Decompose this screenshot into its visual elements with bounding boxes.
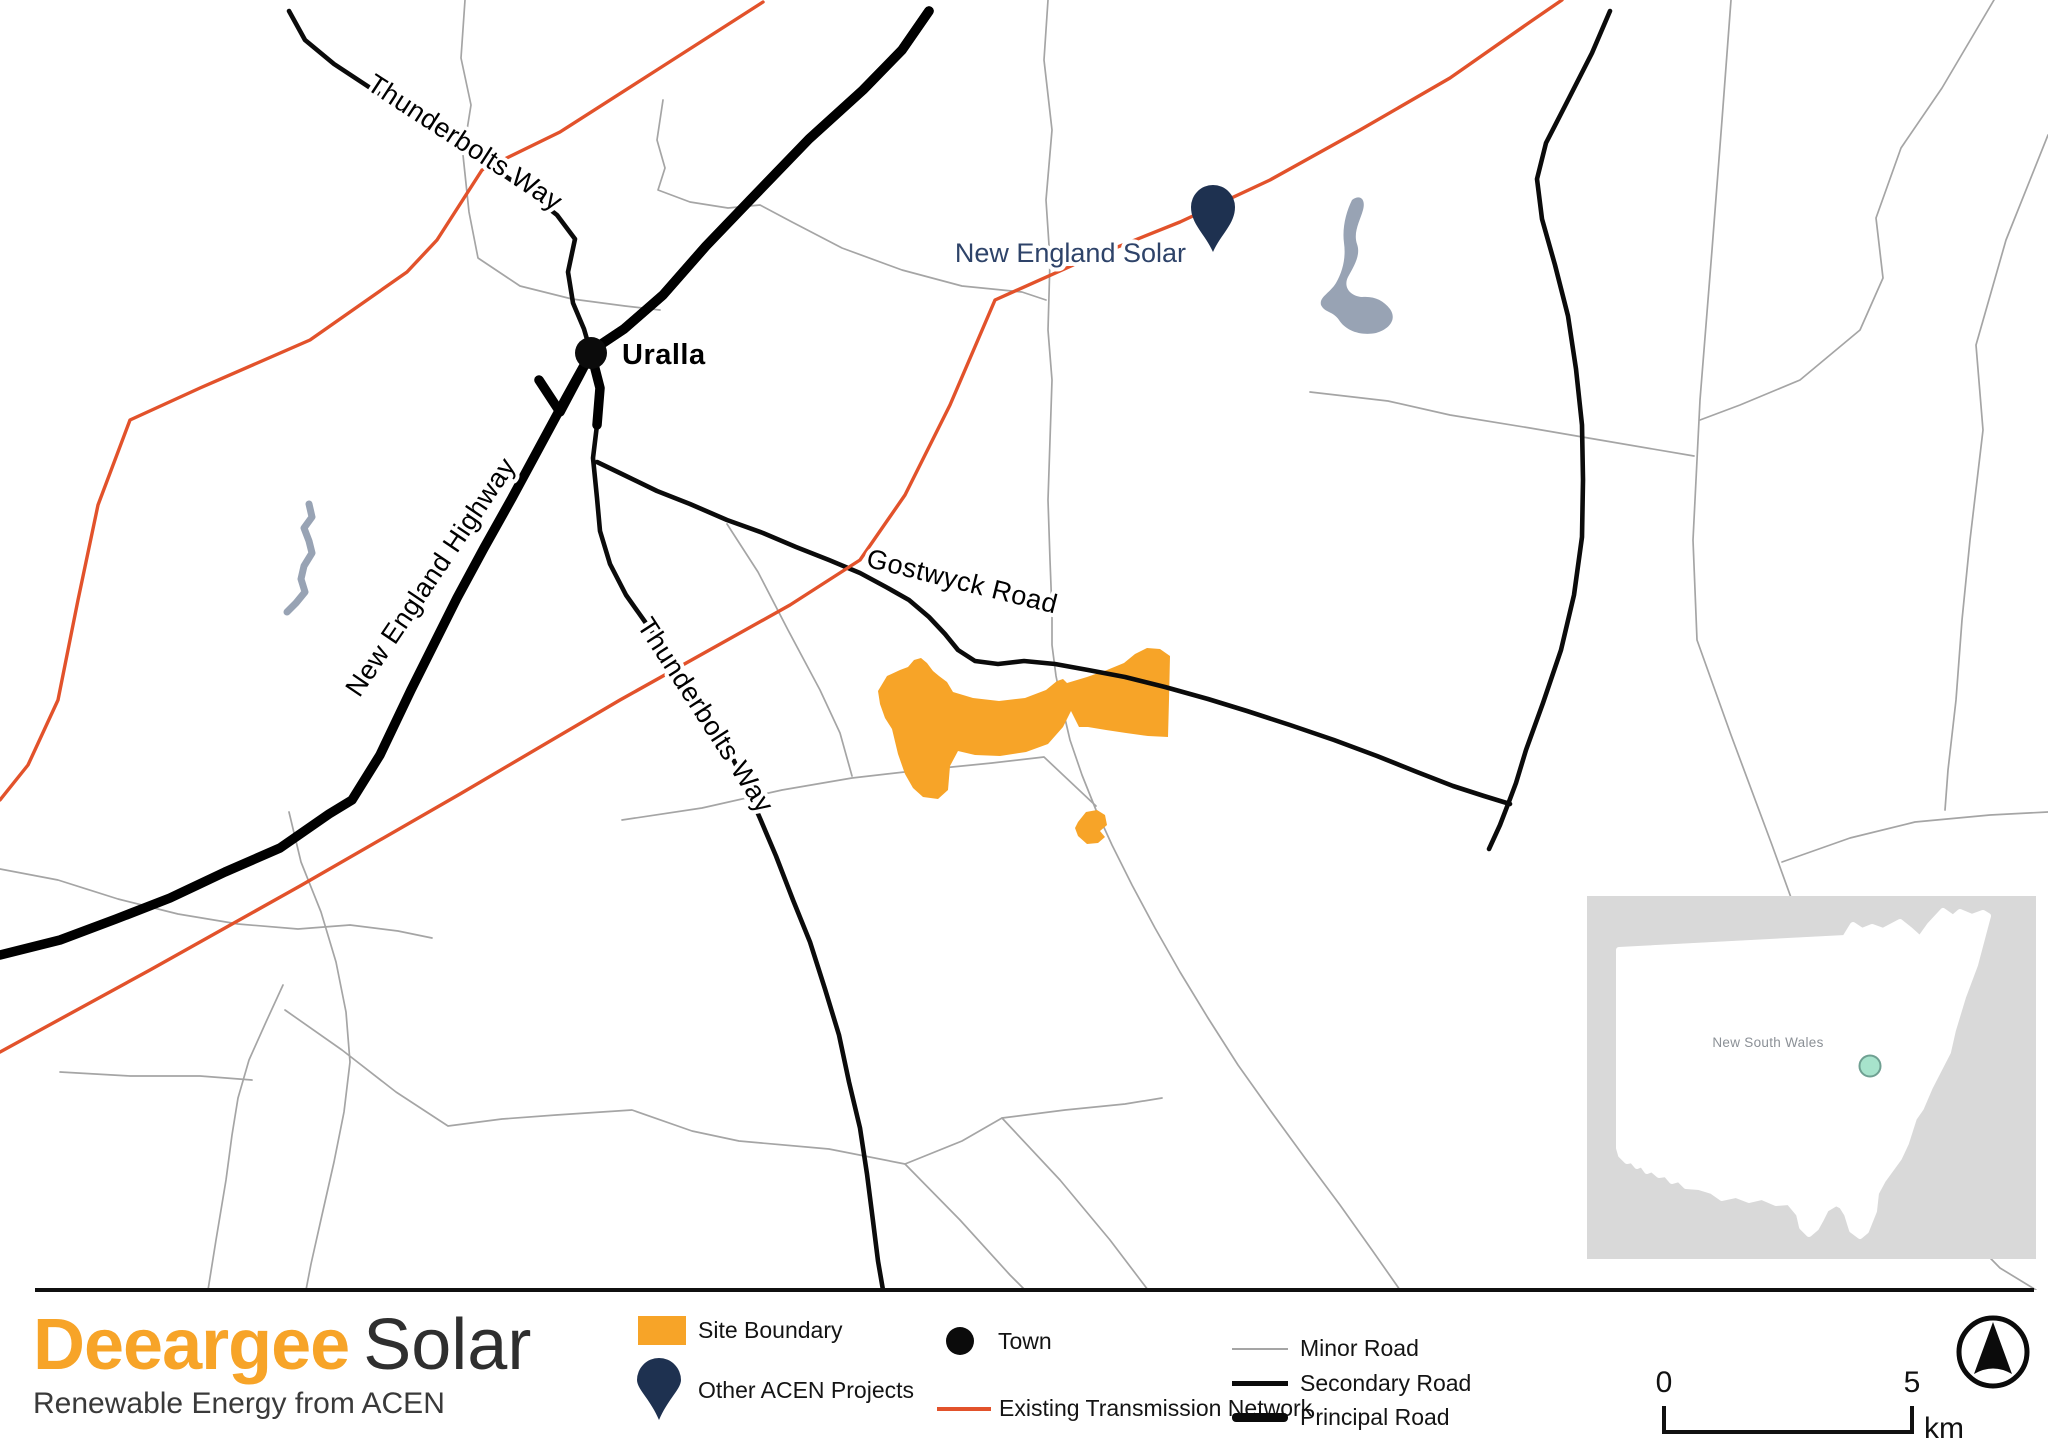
scale-end-value: 5 (1904, 1366, 1921, 1399)
acen-pin-icon (633, 1358, 685, 1422)
transmission-line-west (0, 2, 763, 800)
scale-unit-label: km (1924, 1412, 1964, 1445)
lake-icon (1321, 197, 1393, 333)
transmission-line-icon (937, 1407, 991, 1411)
road-label-new-england-highway: New England Highway (339, 452, 521, 702)
minor-road-line-icon (1232, 1348, 1288, 1350)
road-label-thunderbolts-way-south: Thunderbolts Way (631, 612, 779, 818)
legend-label: Minor Road (1300, 1335, 1419, 1362)
legend-label: Town (998, 1328, 1052, 1355)
logo-suffix: Solar (363, 1305, 531, 1385)
town-dot-uralla (575, 337, 607, 369)
secondary-roads (289, 11, 1610, 1290)
secondary-road-line-icon (1232, 1381, 1288, 1386)
legend-item-secondary-road: Secondary Road (1232, 1370, 1471, 1397)
legend-label: Site Boundary (698, 1317, 842, 1344)
scale-start-value: 0 (1656, 1366, 1673, 1399)
acen-project-pin-label: New England Solar (955, 238, 1186, 268)
legend-label: Principal Road (1300, 1404, 1450, 1431)
north-arrow (1954, 1312, 2034, 1397)
legend-item-town: Town (946, 1327, 1052, 1355)
legend-item-site-boundary: Site Boundary (638, 1316, 842, 1345)
creek-icon (287, 504, 312, 612)
map-canvas: Uralla New England Solar Thunderbolts Wa… (0, 0, 2048, 1290)
legend-label: Other ACEN Projects (698, 1377, 914, 1404)
map-svg: Uralla New England Solar Thunderbolts Wa… (0, 0, 2048, 1290)
logo: DeeargeeSolar Renewable Energy from ACEN (33, 1308, 531, 1419)
inset-location-marker (1860, 1056, 1881, 1077)
inset-map: New South Wales (1587, 896, 2036, 1259)
road-label-gostwyck-road: Gostwyck Road (864, 543, 1061, 619)
logo-wordmark: DeeargeeSolar (33, 1308, 531, 1384)
legend-label: Secondary Road (1300, 1370, 1471, 1397)
footer-divider (35, 1288, 2034, 1292)
town-label-uralla: Uralla (622, 339, 706, 371)
transmission-line-main (0, 0, 1562, 1052)
town-dot-icon (946, 1327, 974, 1355)
legend-item-minor-road: Minor Road (1232, 1335, 1419, 1362)
transmission-lines (0, 0, 1562, 1052)
site-boundary-swatch-icon (638, 1316, 686, 1345)
inset-region-label: New South Wales (1712, 1035, 1823, 1050)
road-east-secondary (1489, 11, 1610, 849)
logo-tagline: Renewable Energy from ACEN (33, 1388, 531, 1420)
legend-item-other-acen-projects: Other ACEN Projects (633, 1358, 914, 1422)
road-thunderbolts-way-south (593, 425, 883, 1290)
logo-brand: Deeargee (33, 1305, 349, 1385)
scale-bar: 0 5 km (1640, 1358, 1980, 1451)
site-boundary-main (878, 648, 1170, 799)
site-boundary-small (1075, 810, 1107, 844)
legend-item-principal-road: Principal Road (1232, 1404, 1450, 1431)
principal-road-line-icon (1232, 1413, 1288, 1422)
scale-bar-line (1664, 1406, 1912, 1432)
acen-project-pin-icon (1191, 185, 1235, 252)
